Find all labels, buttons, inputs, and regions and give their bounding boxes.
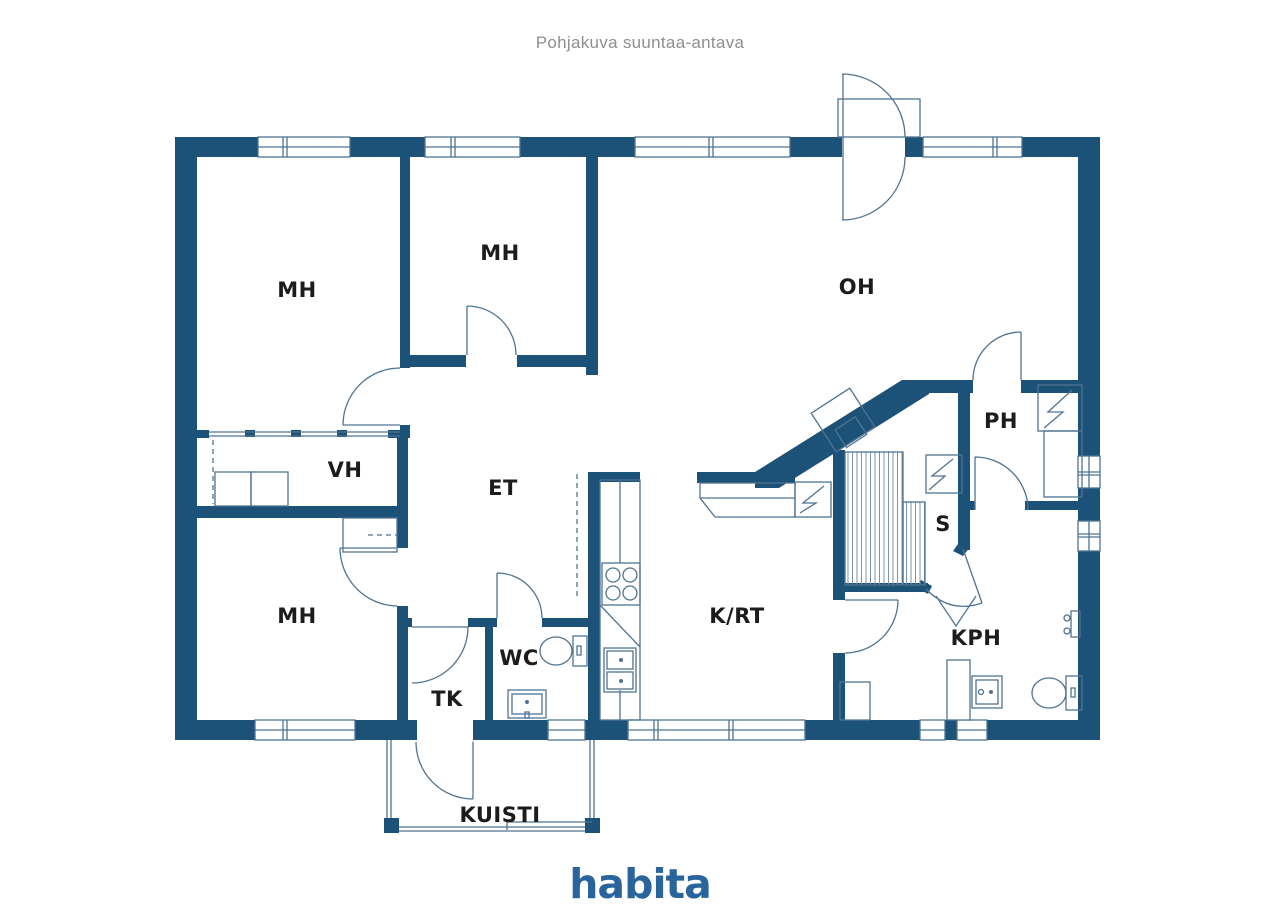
room-label-tk: TK	[431, 687, 463, 711]
habita-logo: habita	[0, 860, 1280, 908]
room-label-mh-top-left: MH	[277, 278, 316, 302]
room-labels-layer: MHMHOHVHETPHSMHK/RTKPHWCTKKUISTI	[0, 0, 1280, 905]
room-label-wc: WC	[499, 646, 539, 670]
room-label-mh-top-middle: MH	[480, 241, 519, 265]
room-label-kph: KPH	[951, 626, 1002, 650]
room-label-sauna: S	[935, 512, 951, 536]
room-label-kuisti: KUISTI	[459, 803, 540, 827]
room-label-et: ET	[488, 476, 518, 500]
room-label-vh: VH	[328, 458, 363, 482]
room-label-krt: K/RT	[709, 604, 765, 628]
room-label-oh: OH	[839, 275, 875, 299]
room-label-ph: PH	[984, 409, 1018, 433]
room-label-mh-bottom-left: MH	[277, 604, 316, 628]
